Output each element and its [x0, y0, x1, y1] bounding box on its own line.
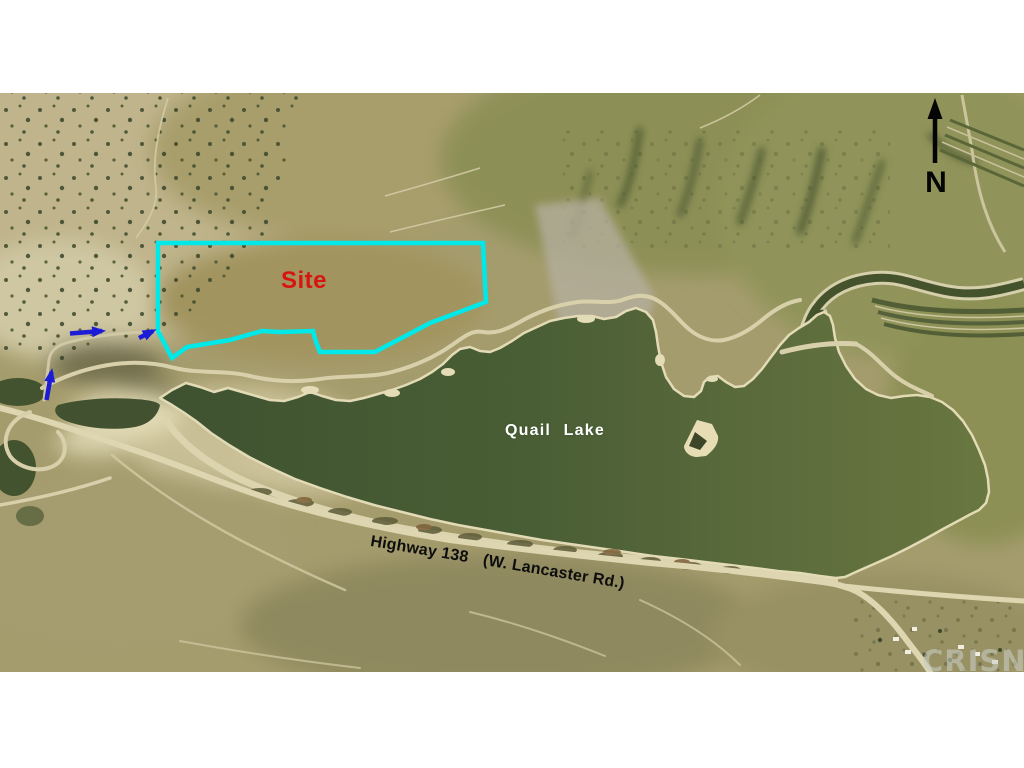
- north-arrow-icon: [928, 98, 943, 163]
- top-margin: [0, 0, 1024, 93]
- annotation-layer: [0, 93, 1024, 672]
- listing-photo-page: Site Quail Lake Highway 138(W. Lancaster…: [0, 0, 1024, 768]
- site-outline: [158, 243, 486, 358]
- route-arrows: [47, 331, 154, 400]
- aerial-photo: Site Quail Lake Highway 138(W. Lancaster…: [0, 93, 1024, 672]
- bottom-margin: [0, 672, 1024, 768]
